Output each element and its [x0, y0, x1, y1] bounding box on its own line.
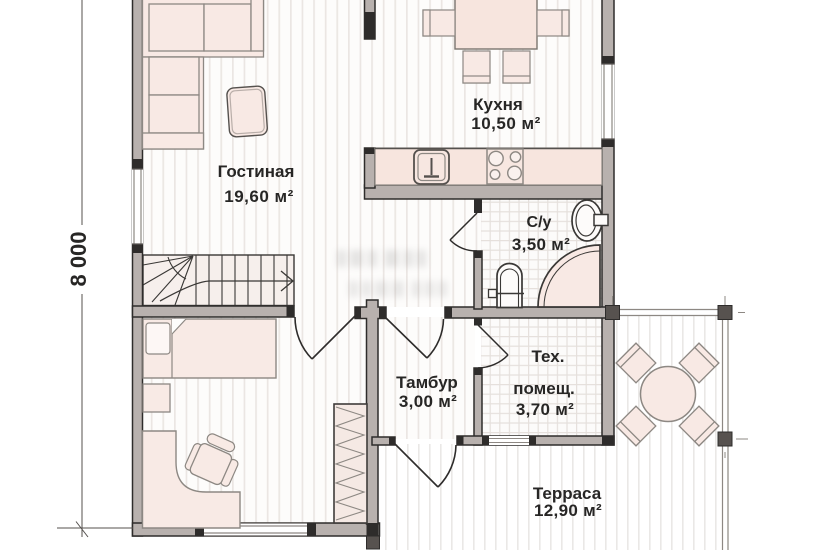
svg-text:Кухня: Кухня: [473, 95, 523, 114]
svg-text:Тех.: Тех.: [532, 347, 565, 366]
svg-text:3,50 м²: 3,50 м²: [512, 235, 570, 254]
svg-text:12,90 м²: 12,90 м²: [534, 501, 602, 520]
svg-text:3,70 м²: 3,70 м²: [516, 400, 574, 419]
svg-text:19,60 м²: 19,60 м²: [224, 187, 294, 206]
svg-text:3,00 м²: 3,00 м²: [399, 392, 457, 411]
svg-text:помещ.: помещ.: [513, 379, 575, 398]
svg-text:С/у: С/у: [527, 214, 552, 231]
svg-text:8 000: 8 000: [66, 231, 91, 286]
svg-text:10,50 м²: 10,50 м²: [471, 114, 541, 133]
svg-text:Гостиная: Гостиная: [218, 162, 295, 181]
svg-text:Тамбур: Тамбур: [396, 373, 458, 392]
